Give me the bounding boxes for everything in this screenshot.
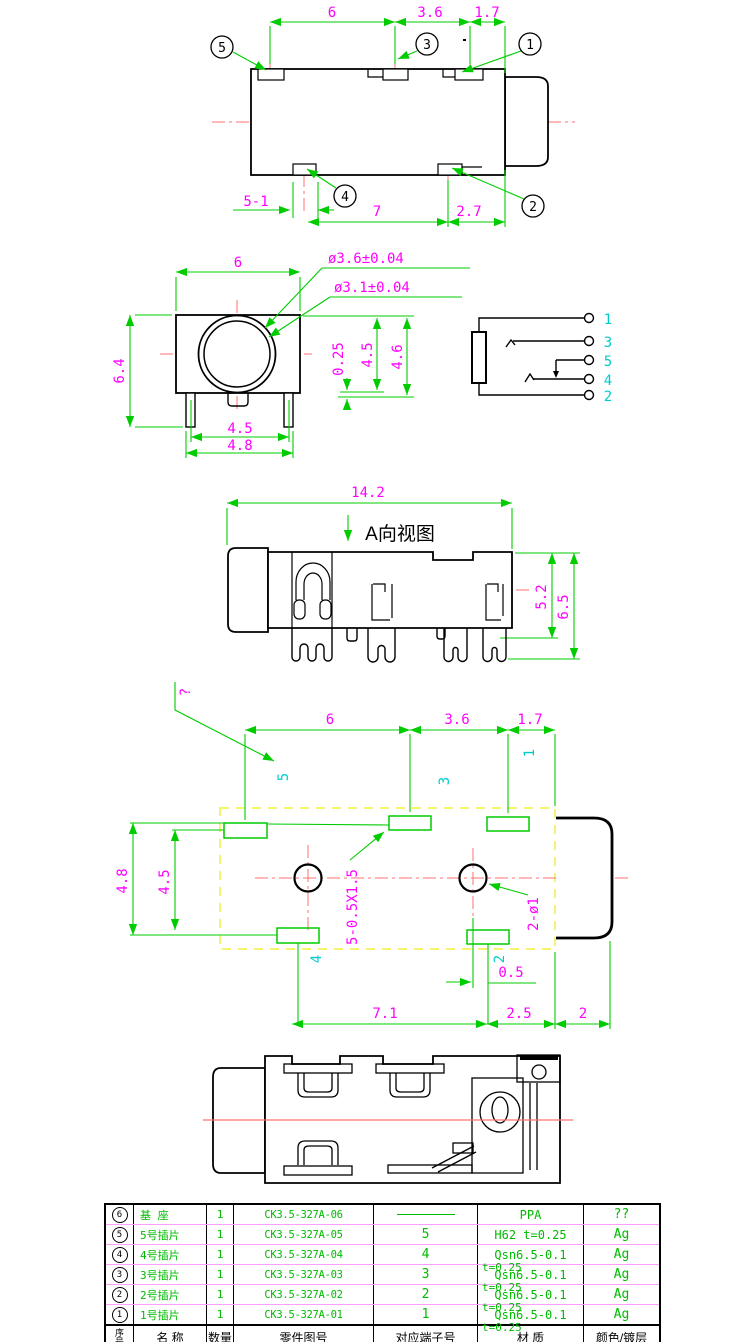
part-number-cell: CK3.5-327A-06: [234, 1205, 374, 1224]
terminal-cell: 4: [374, 1245, 478, 1264]
qty-cell: 1: [207, 1205, 234, 1224]
dim-2: 2: [579, 1006, 587, 1022]
header-name: 名 称: [134, 1326, 207, 1342]
table-header-row: 序号 名 称 数量 零件图号 对应端子号 材 质 颜色/镀层: [106, 1324, 659, 1342]
part-number-cell: CK3.5-327A-04: [234, 1245, 374, 1264]
row-number-cell: 1: [106, 1305, 134, 1324]
view-pcb-layout: ? 6 3.6 1.7 4.8 4.5 5 3 1 4 2 5-0.5X1.5 …: [115, 682, 628, 1029]
row-number-cell: 3: [106, 1265, 134, 1284]
material-thickness-overflow: t=0.25: [482, 1283, 522, 1293]
finish-cell: Ag: [584, 1225, 659, 1244]
dim-4.6-right: 4.6: [390, 344, 406, 369]
pad-label-4: 4: [309, 955, 325, 963]
dim-3.6-top: 3.6: [417, 5, 442, 21]
material-thickness-overflow: t=0.25: [482, 1323, 522, 1333]
material-text: H62 t=0.25: [494, 1228, 566, 1242]
dim-1.7-top: 1.7: [474, 5, 499, 21]
label-inner-diameter: ø3.1±0.04: [334, 280, 410, 296]
terminal-cell: 3: [374, 1265, 478, 1284]
dim-4.5-right: 4.5: [360, 342, 376, 367]
dim-5-1: 5-1: [243, 194, 268, 210]
row-number-cell: 4: [106, 1245, 134, 1264]
circled-number: 4: [112, 1247, 128, 1263]
terminal-cell: [374, 1205, 478, 1224]
table-row: 6 基 座 1 CK3.5-327A-06 PPA ??: [106, 1205, 659, 1224]
view-top-plan: 6 3.6 1.7 5-1 7 2.7 5 3 1 4 2: [211, 5, 575, 227]
material-text: Qsn6.5-0.1: [494, 1248, 566, 1262]
finish-cell: Ag: [584, 1265, 659, 1284]
dim-height: 6.4: [112, 358, 128, 383]
table-row: 3 3号插片 1 CK3.5-327A-03 3 Qsn6.5-0.1t=0.2…: [106, 1264, 659, 1284]
terminal-label-2: 2: [604, 389, 612, 405]
dim-7.1: 7.1: [372, 1006, 397, 1022]
connector-body-outline: [251, 40, 548, 175]
callout-3: 3: [423, 38, 431, 53]
label-question: ?: [178, 688, 194, 696]
terminal-cell: 1: [374, 1305, 478, 1324]
terminal-label-1: 1: [604, 312, 612, 328]
terminal-label-4: 4: [604, 373, 612, 389]
row-number-cell: 2: [106, 1285, 134, 1304]
finish-cell: Ag: [584, 1285, 659, 1304]
callout-2: 2: [529, 200, 537, 215]
header-terminal: 对应端子号: [374, 1326, 478, 1342]
table-row: 4 4号插片 1 CK3.5-327A-04 4 Qsn6.5-0.1t=0.2…: [106, 1244, 659, 1264]
dim-6.5: 6.5: [556, 594, 572, 619]
dim-4.5: 4.5: [157, 869, 173, 894]
row-number-cell: 6: [106, 1205, 134, 1224]
row-number-cell: 5: [106, 1225, 134, 1244]
dimension-lines: [130, 682, 610, 1029]
pad-label-3: 3: [437, 777, 453, 785]
circled-number: 6: [112, 1207, 128, 1223]
dim-5.2: 5.2: [534, 584, 550, 609]
circuit-schematic: 1 3 5 4 2: [472, 312, 612, 405]
material-text: PPA: [520, 1208, 542, 1222]
terminal-dash-line: [397, 1214, 455, 1215]
label-outer-diameter: ø3.6±0.04: [328, 251, 404, 267]
part-number-cell: CK3.5-327A-03: [234, 1265, 374, 1284]
circled-number: 2: [112, 1287, 128, 1303]
view-a-direction: 14.2 A向视图 5.2 6.5: [227, 485, 580, 662]
part-number-cell: CK3.5-327A-05: [234, 1225, 374, 1244]
finish-cell: ??: [584, 1205, 659, 1224]
callout-4: 4: [341, 190, 349, 205]
view-front: 6 6.4 4.5 4.8 ø3.6±0.04 ø3.1±0.04 0.25 4…: [112, 251, 470, 458]
material-thickness-overflow: t=0.25: [482, 1263, 522, 1273]
header-row-number: 序号: [106, 1326, 134, 1342]
header-part-number: 零件图号: [234, 1326, 374, 1342]
dim-0.5: 0.5: [498, 965, 523, 981]
callout-5: 5: [218, 41, 226, 56]
finish-cell: Ag: [584, 1305, 659, 1324]
dim-6-top: 6: [328, 5, 336, 21]
table-row: 1 1号插片 1 CK3.5-327A-01 1 Qsn6.5-0.1t=0.2…: [106, 1304, 659, 1324]
front-body: [176, 315, 300, 427]
dim-6: 6: [326, 712, 334, 728]
material-cell: Qsn6.5-0.1t=0.25: [478, 1245, 584, 1264]
solder-pads: [224, 816, 529, 944]
part-name-cell: 1号插片: [134, 1305, 207, 1324]
finish-cell: Ag: [584, 1245, 659, 1264]
dim-offset-0.25: 0.25: [331, 342, 347, 376]
part-name-cell: 2号插片: [134, 1285, 207, 1304]
qty-cell: 1: [207, 1265, 234, 1284]
a-view-body: [228, 548, 512, 662]
circled-number: 5: [112, 1227, 128, 1243]
material-thickness-overflow: t=0.25: [482, 1303, 522, 1313]
dim-14.2: 14.2: [351, 485, 385, 501]
drawing-views: 6 3.6 1.7 5-1 7 2.7 5 3 1 4 2: [0, 0, 740, 1342]
circled-number: 1: [112, 1307, 128, 1323]
callout-1: 1: [526, 38, 534, 53]
qty-cell: 1: [207, 1285, 234, 1304]
material-cell: H62 t=0.25: [478, 1225, 584, 1244]
section-body: [213, 1055, 560, 1183]
dim-pins-inner: 4.5: [227, 421, 252, 437]
dim-width: 6: [234, 255, 242, 271]
circled-number: 3: [112, 1267, 128, 1283]
pad-label-5: 5: [276, 773, 292, 781]
dim-2.5: 2.5: [506, 1006, 531, 1022]
label-holes: 2-ø1: [526, 897, 542, 931]
qty-cell: 1: [207, 1225, 234, 1244]
terminal-cell: 5: [374, 1225, 478, 1244]
dim-3.6: 3.6: [444, 712, 469, 728]
terminal-label-5: 5: [604, 354, 612, 370]
pad-label-1: 1: [522, 749, 538, 757]
terminal-cell: 2: [374, 1285, 478, 1304]
dim-2.7: 2.7: [456, 204, 481, 220]
pad-label-2: 2: [492, 955, 508, 963]
part-number-cell: CK3.5-327A-01: [234, 1305, 374, 1324]
dim-4.8: 4.8: [115, 868, 131, 893]
table-row: 5 5号插片 1 CK3.5-327A-05 5 H62 t=0.25 Ag: [106, 1224, 659, 1244]
part-number-cell: CK3.5-327A-02: [234, 1285, 374, 1304]
qty-cell: 1: [207, 1305, 234, 1324]
engineering-drawing-sheet: 6 3.6 1.7 5-1 7 2.7 5 3 1 4 2: [0, 0, 740, 1342]
part-name-cell: 5号插片: [134, 1225, 207, 1244]
terminal-label-3: 3: [604, 335, 612, 351]
header-finish: 颜色/镀层: [584, 1326, 659, 1342]
part-name-cell: 3号插片: [134, 1265, 207, 1284]
dim-1.7: 1.7: [517, 712, 542, 728]
dim-7: 7: [373, 204, 381, 220]
qty-cell: 1: [207, 1245, 234, 1264]
part-name-cell: 4号插片: [134, 1245, 207, 1264]
part-name-cell: 基 座: [134, 1205, 207, 1224]
table-row: 2 2号插片 1 CK3.5-327A-02 2 Qsn6.5-0.1t=0.2…: [106, 1284, 659, 1304]
view-a-title: A向视图: [365, 523, 435, 545]
label-slots: 5-0.5X1.5: [345, 869, 361, 945]
view-internal-section: [203, 1055, 573, 1183]
header-qty: 数量: [207, 1326, 234, 1342]
dim-pins-outer: 4.8: [227, 438, 252, 454]
parts-table: 6 基 座 1 CK3.5-327A-06 PPA ?? 5 5号插片 1 CK…: [104, 1203, 661, 1342]
material-cell: PPA: [478, 1205, 584, 1224]
schematic-wires: [472, 314, 594, 400]
